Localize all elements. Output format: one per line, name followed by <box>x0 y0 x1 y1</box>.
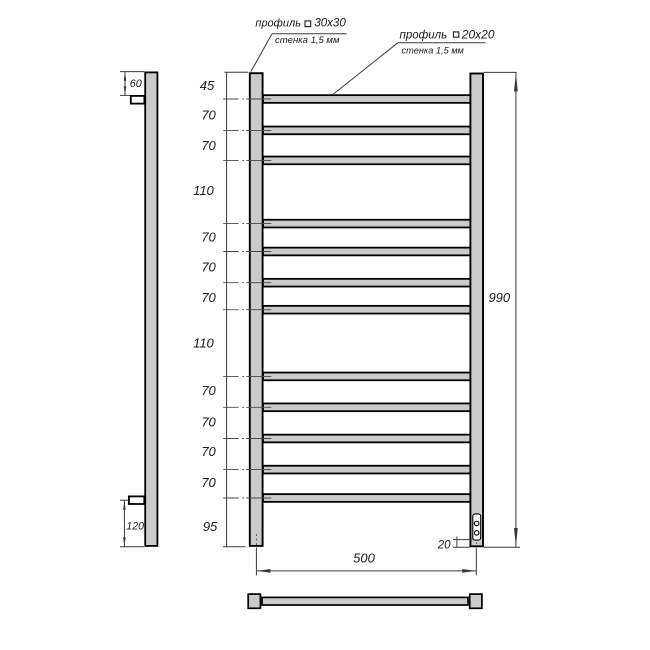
svg-text:70: 70 <box>201 415 216 430</box>
svg-text:70: 70 <box>201 383 216 398</box>
svg-text:45: 45 <box>200 78 215 93</box>
svg-text:70: 70 <box>201 475 216 490</box>
svg-text:500: 500 <box>353 551 375 566</box>
svg-text:70: 70 <box>201 138 216 153</box>
svg-text:20х20: 20х20 <box>461 28 495 42</box>
svg-text:стенка 1,5 мм: стенка 1,5 мм <box>275 35 340 46</box>
svg-text:120: 120 <box>126 520 144 532</box>
svg-text:60: 60 <box>130 78 142 90</box>
svg-text:70: 70 <box>201 444 216 459</box>
svg-text:20: 20 <box>437 539 451 551</box>
svg-text:профиль: профиль <box>400 30 448 42</box>
svg-text:70: 70 <box>201 107 216 122</box>
svg-text:стенка 1,5 мм: стенка 1,5 мм <box>402 46 465 56</box>
svg-text:110: 110 <box>193 336 214 351</box>
svg-text:70: 70 <box>201 230 216 245</box>
svg-text:70: 70 <box>201 290 216 305</box>
svg-text:990: 990 <box>488 290 510 305</box>
svg-text:профиль: профиль <box>255 18 301 30</box>
svg-text:30х30: 30х30 <box>314 18 346 30</box>
svg-text:110: 110 <box>193 183 214 198</box>
svg-text:95: 95 <box>203 519 218 534</box>
svg-text:70: 70 <box>201 260 216 275</box>
